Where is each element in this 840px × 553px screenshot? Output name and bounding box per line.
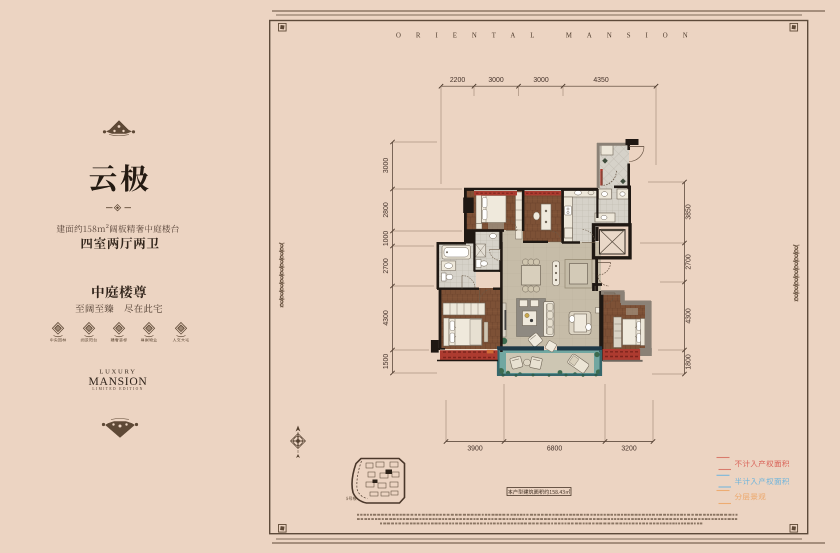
svg-text:ORIENTAL MANSION: ORIENTAL MANSION bbox=[396, 33, 703, 40]
svg-text:2700: 2700 bbox=[686, 254, 693, 269]
svg-text:1800: 1800 bbox=[686, 354, 693, 369]
svg-text:4350: 4350 bbox=[593, 77, 608, 84]
svg-text:3000: 3000 bbox=[488, 77, 503, 84]
svg-text:3200: 3200 bbox=[621, 446, 636, 453]
svg-text:1000: 1000 bbox=[383, 231, 390, 246]
svg-text:3000: 3000 bbox=[383, 158, 390, 173]
svg-text:6800: 6800 bbox=[547, 446, 562, 453]
svg-text:3000: 3000 bbox=[533, 77, 548, 84]
svg-text:2700: 2700 bbox=[383, 258, 390, 273]
svg-text:4300: 4300 bbox=[383, 310, 390, 325]
svg-text:3900: 3900 bbox=[467, 446, 482, 453]
svg-text:4300: 4300 bbox=[686, 308, 693, 323]
svg-text:2200: 2200 bbox=[450, 77, 465, 84]
svg-text:2800: 2800 bbox=[383, 202, 390, 217]
svg-text:LIMITED EDITION: LIMITED EDITION bbox=[92, 387, 143, 391]
svg-text:1500: 1500 bbox=[383, 354, 390, 369]
svg-text:3850: 3850 bbox=[686, 204, 693, 219]
